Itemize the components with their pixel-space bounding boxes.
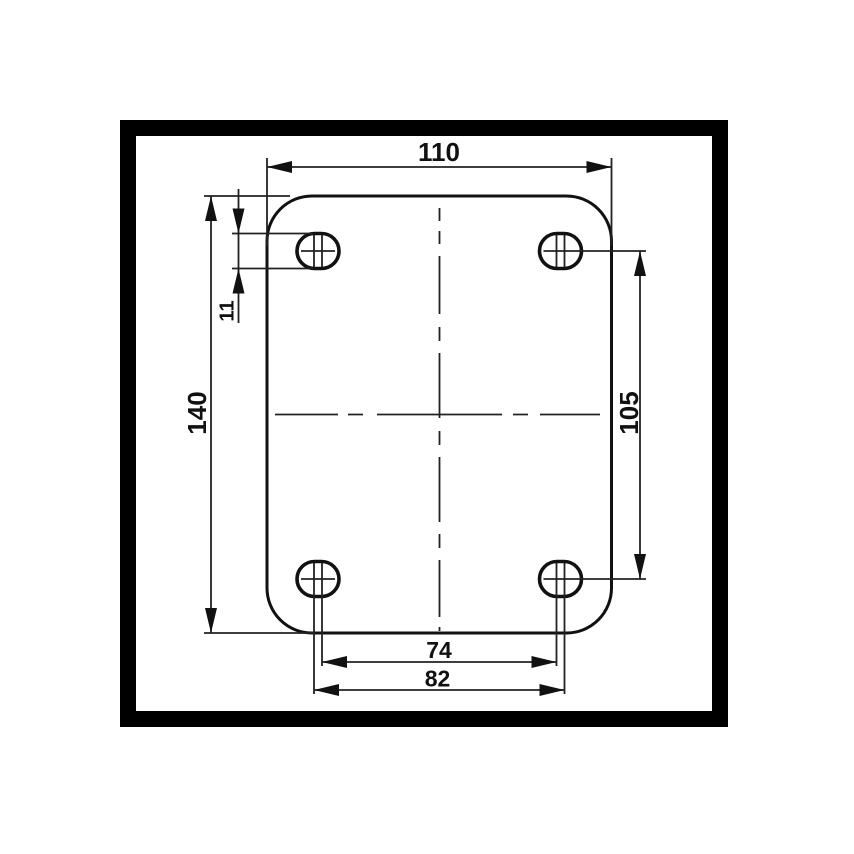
arrowhead-down-icon (205, 608, 217, 633)
arrowhead-up-icon (634, 251, 646, 276)
crosshair-top-left (301, 235, 335, 267)
dim-label-hole-spacing-outer: 82 (425, 666, 451, 692)
arrowhead-down-icon (634, 554, 646, 579)
dim-label-hole-spacing-inner: 74 (426, 637, 452, 663)
arrowhead-left-icon (267, 161, 292, 173)
arrowhead-right-icon (532, 656, 557, 668)
crosshair-top-right (544, 235, 647, 267)
arrowhead-right-icon (587, 161, 612, 173)
dim-label-hole-spacing-vertical: 105 (614, 391, 644, 434)
arrowhead-right-icon (540, 684, 565, 696)
crosshair-bottom-right (544, 563, 647, 694)
technical-drawing: 110 140 11 105 74 82 (0, 0, 854, 854)
dim-label-hole-size: 11 (217, 300, 239, 321)
crosshair-bottom-left (301, 563, 335, 694)
arrowhead-down-icon (233, 209, 245, 234)
arrowhead-up-icon (205, 196, 217, 221)
dim-label-plate-width: 110 (418, 137, 460, 167)
arrowhead-left-icon (322, 656, 347, 668)
arrowhead-up-icon (233, 269, 245, 294)
arrowhead-left-icon (314, 684, 339, 696)
drawing-canvas: 110 140 11 105 74 82 (0, 0, 854, 854)
dim-label-plate-height: 140 (182, 391, 212, 434)
